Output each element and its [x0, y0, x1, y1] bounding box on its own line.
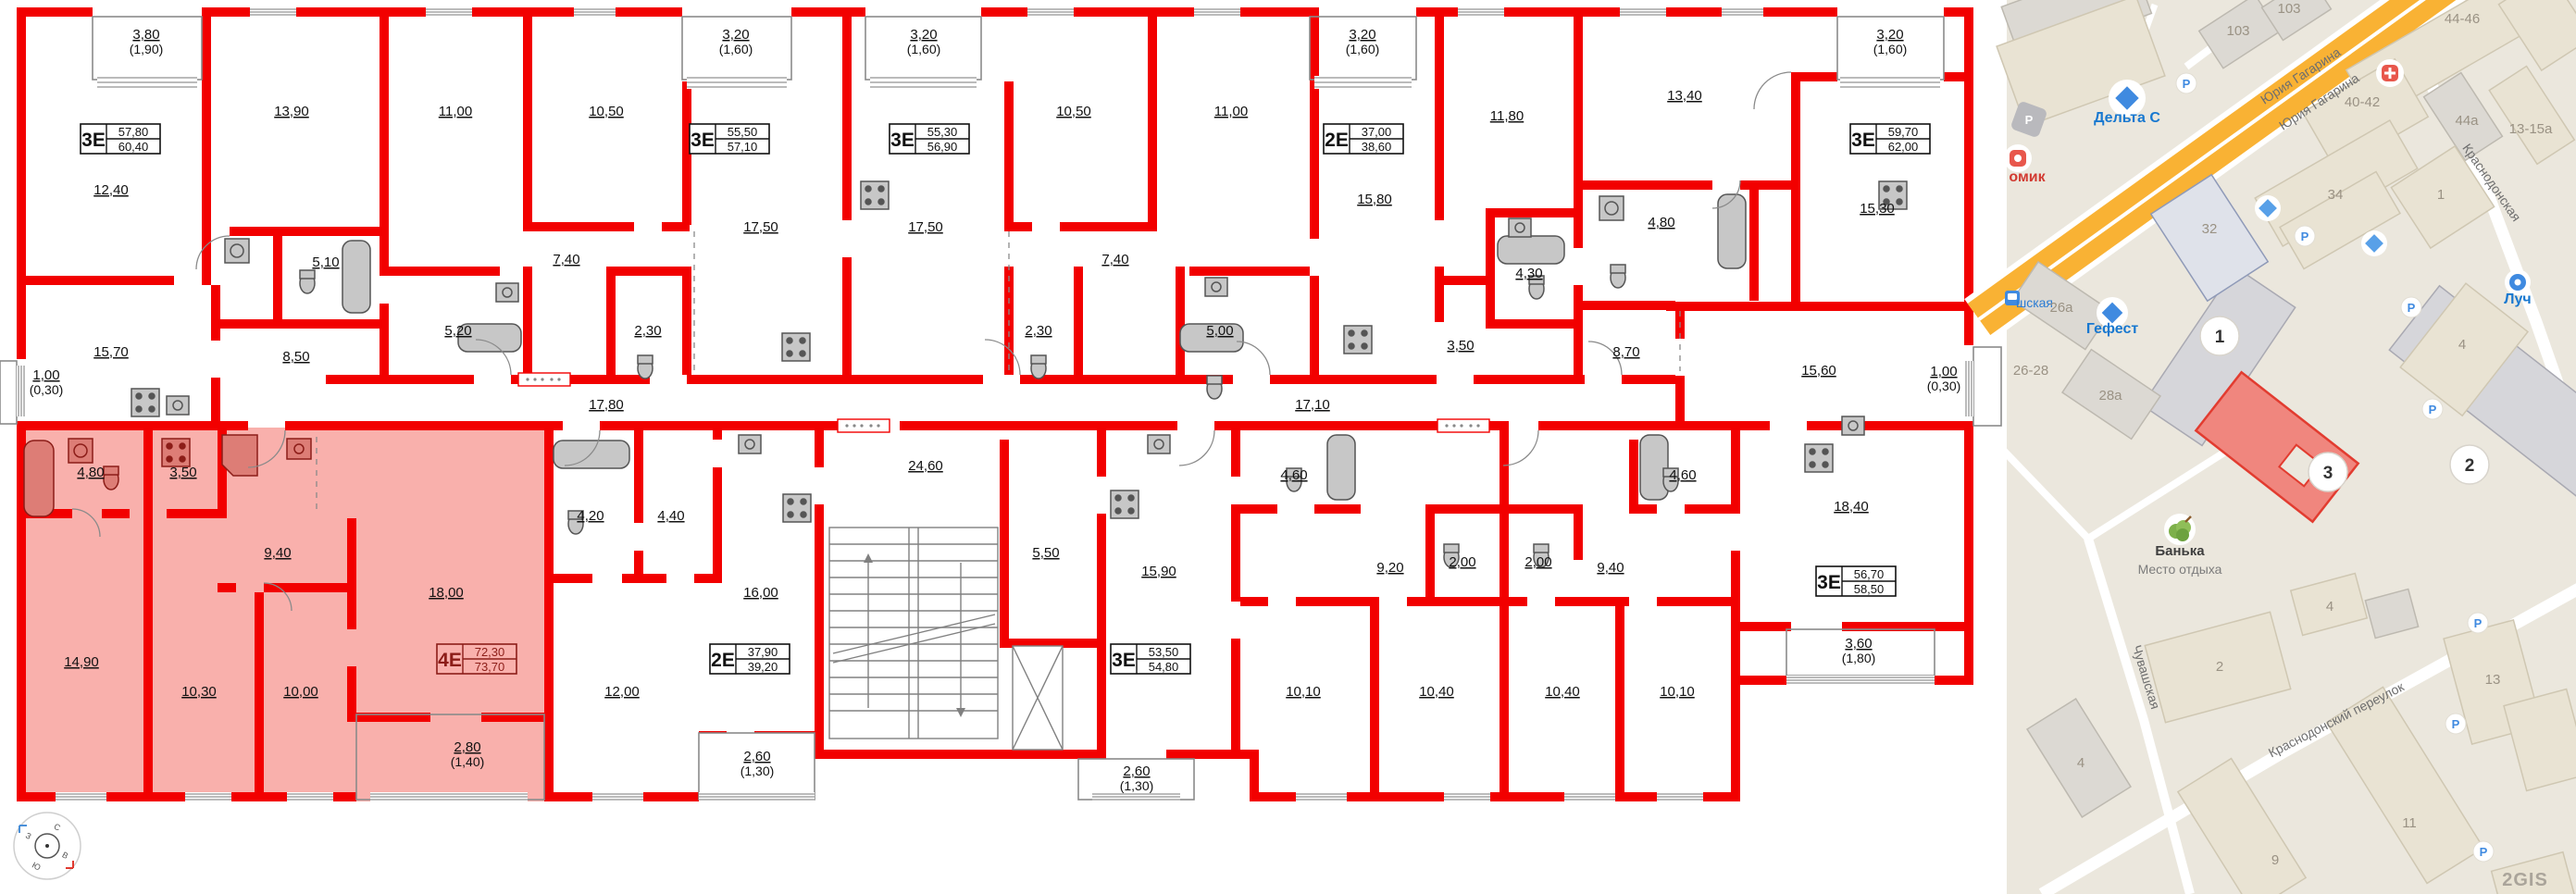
room-area-label: 17,50 — [908, 219, 943, 235]
room-area-label: 10,10 — [1286, 684, 1321, 700]
toilet-icon — [638, 355, 653, 379]
medical-poi-icon[interactable] — [2376, 59, 2404, 87]
building-number-label: 2 — [2216, 659, 2223, 675]
room-area-label: 15,80 — [1357, 192, 1392, 207]
room-area-label: 11,80 — [1490, 108, 1524, 124]
parking-icon[interactable]: P — [2468, 613, 2488, 633]
room-area-label: 11,00 — [1214, 104, 1248, 119]
room-area-label: 5,20 — [444, 323, 471, 339]
room-area-label: 13,40 — [1667, 88, 1702, 104]
apartment-badge[interactable]: 2Е37,9039,20 — [710, 644, 790, 674]
apartment-badge[interactable]: 3Е55,5057,10 — [690, 124, 769, 154]
sink-icon — [496, 283, 518, 302]
map-watermark: 2GIS — [2502, 870, 2548, 890]
stove-icon — [1805, 444, 1833, 472]
apartment-area-living: 72,30 — [475, 645, 505, 659]
room-area-label: 4,40 — [657, 508, 684, 524]
sink-icon — [1205, 278, 1227, 296]
balcony-coef-label: (1,60) — [907, 42, 941, 56]
stove-icon — [162, 439, 190, 466]
parking-icon[interactable]: P — [2295, 226, 2315, 246]
apartment-area-total: 58,50 — [1854, 582, 1885, 596]
building-number-label: 103 — [2226, 23, 2249, 39]
toilet-icon — [1611, 265, 1625, 288]
building-number-label: 103 — [2277, 1, 2300, 17]
parking-letter: P — [2301, 230, 2309, 243]
room-area-label: 7,40 — [553, 252, 579, 267]
apartment-area-total: 60,40 — [118, 140, 149, 154]
building-number-label: 34 — [2328, 187, 2344, 203]
balcony-area-label: 2,80 — [454, 739, 480, 755]
room-area-label: 3,50 — [169, 465, 196, 480]
washing-machine-icon — [225, 239, 249, 263]
room-area-label: 5,00 — [1206, 323, 1233, 339]
elevator-shaft — [1013, 646, 1063, 750]
building-number-label: 4 — [2326, 599, 2333, 615]
apartment-badge[interactable]: 3Е55,3056,90 — [890, 124, 969, 154]
apartment-area-living: 55,30 — [927, 125, 958, 139]
bathtub-icon — [1498, 236, 1564, 264]
sink-icon — [167, 396, 189, 415]
balcony-coef-label: (1,60) — [1873, 42, 1908, 56]
room-area-label: 24,60 — [908, 458, 943, 474]
map-marker-number: 1 — [2215, 328, 2225, 347]
svg-text:P: P — [2025, 113, 2034, 127]
building-number-label: 13-15а — [2509, 121, 2553, 137]
room-area-label: 11,00 — [439, 104, 472, 119]
building-number-label: 4 — [2458, 337, 2466, 353]
parking-letter: P — [2474, 616, 2483, 630]
balcony-area-label: 3,20 — [1349, 27, 1375, 43]
poi-label[interactable]: Луч — [2504, 292, 2531, 307]
room-area-label: 10,50 — [589, 104, 624, 119]
stove-icon — [131, 389, 159, 416]
balcony-coef-label: (1,40) — [451, 754, 485, 769]
stove-icon — [1344, 326, 1372, 354]
toilet-icon — [104, 466, 118, 490]
room-area-label: 15,30 — [1860, 201, 1895, 217]
room-area-label: 16,00 — [743, 585, 778, 601]
apartment-area-total: 56,90 — [927, 140, 958, 154]
poi-label[interactable]: Гефест — [2086, 321, 2139, 337]
room-area-label: 10,40 — [1419, 684, 1454, 700]
poi-label[interactable]: омик — [2009, 169, 2046, 185]
building-number-label: 26а — [2049, 300, 2073, 316]
balcony-area-label: 1,00 — [1930, 364, 1957, 379]
balcony-area-label: 1,00 — [32, 367, 59, 383]
balcony-area-label: 3,20 — [910, 27, 937, 43]
room-area-label: 2,00 — [1449, 554, 1475, 570]
sink-icon — [739, 435, 761, 453]
building-number-label: 40-42 — [2345, 94, 2380, 110]
bathtub-icon — [1640, 435, 1668, 500]
building-number-label: 9 — [2271, 852, 2279, 868]
room-area-label: 3,50 — [1447, 338, 1474, 354]
room-area-label: 9,40 — [264, 545, 291, 561]
balcony-area-label: 3,60 — [1845, 636, 1872, 652]
apartment-badge[interactable]: 3Е56,7058,50 — [1816, 566, 1896, 596]
map-marker-3[interactable]: 3 — [2308, 453, 2347, 491]
building-number-label: 26-28 — [2013, 363, 2048, 379]
room-area-label: 7,40 — [1101, 252, 1128, 267]
parking-letter: P — [2408, 301, 2416, 315]
toilet-icon — [1207, 376, 1222, 399]
room-area-label: 2,00 — [1524, 554, 1551, 570]
room-area-label: 12,40 — [93, 182, 129, 198]
apartment-area-living: 57,80 — [118, 125, 149, 139]
bathtub-icon — [24, 441, 54, 516]
room-area-label: 5,50 — [1032, 545, 1059, 561]
apartment-badge[interactable]: 3Е57,8060,40 — [81, 124, 160, 154]
parking-letter: P — [2480, 845, 2488, 859]
room-area-label: 13,90 — [274, 104, 309, 119]
room-area-label: 17,50 — [743, 219, 778, 235]
building-number-label: 44-46 — [2445, 11, 2480, 27]
apartment-type: 3Е — [691, 130, 715, 151]
parking-letter: P — [2183, 77, 2191, 91]
apartment-type: 3Е — [1112, 650, 1136, 671]
building-number-label: 28а — [2098, 388, 2122, 404]
balcony-coef-label: (1,30) — [740, 764, 775, 778]
apartment-area-living: 56,70 — [1854, 567, 1885, 581]
transit-stop-label[interactable]: шская — [2016, 295, 2053, 310]
poi-diamond-icon[interactable] — [2361, 230, 2387, 256]
toilet-icon — [300, 270, 315, 293]
staircase — [829, 528, 998, 739]
apartment-type: 3Е — [1851, 130, 1875, 151]
balcony-coef-label: (1,60) — [719, 42, 753, 56]
parking-icon[interactable]: P — [2422, 399, 2443, 419]
washing-machine-icon — [1599, 196, 1624, 220]
parking-icon[interactable]: P — [2401, 297, 2421, 317]
toilet-icon — [1031, 355, 1046, 379]
sink-icon — [1842, 416, 1864, 435]
room-area-label: 10,50 — [1056, 104, 1091, 119]
building-number-label: 11 — [2402, 815, 2417, 831]
parking-letter: P — [2452, 717, 2460, 731]
room-area-label: 18,40 — [1834, 499, 1869, 515]
floor-plan: 13,9011,0012,405,108,5015,7010,507,405,2… — [0, 0, 2007, 894]
room-area-label: 4,60 — [1280, 467, 1307, 483]
bathtub-icon — [342, 241, 370, 313]
room-area-label: 2,30 — [1025, 323, 1052, 339]
apartment-badge[interactable]: 2Е37,0038,60 — [1324, 124, 1403, 154]
balcony-coef-label: (1,80) — [1842, 651, 1876, 665]
room-area-label: 10,00 — [283, 684, 318, 700]
apartment-area-living: 53,50 — [1149, 645, 1179, 659]
balcony-coef-label: (1,30) — [1120, 778, 1154, 793]
apartment-area-total: 54,80 — [1149, 660, 1179, 674]
building-number-label: 32 — [2202, 221, 2218, 237]
balcony-coef-label: (1,90) — [130, 42, 164, 56]
balcony-area-label: 2,60 — [1123, 764, 1150, 779]
poi-label[interactable]: Дельта С — [2094, 110, 2160, 126]
apartment-type: 2Е — [1325, 130, 1349, 151]
apartment-area-total: 57,10 — [728, 140, 758, 154]
room-area-label: 9,40 — [1597, 560, 1624, 576]
apartment-type: 2Е — [711, 650, 735, 671]
building-number-label: 1 — [2437, 187, 2445, 203]
sink-icon — [1509, 218, 1531, 237]
room-area-label: 10,10 — [1660, 684, 1695, 700]
bathtub-icon — [554, 441, 629, 468]
bathtub-icon — [1718, 194, 1746, 268]
apartment-area-total: 39,20 — [748, 660, 778, 674]
room-area-label: 9,20 — [1376, 560, 1403, 576]
map-marker-number: 2 — [2465, 456, 2475, 476]
balcony-area-label: 3,20 — [1876, 27, 1903, 43]
room-area-label: 4,80 — [1648, 215, 1674, 230]
banka-tree-icon[interactable] — [2164, 514, 2196, 545]
balcony-area-label: 2,60 — [743, 749, 770, 764]
stove-icon — [861, 181, 889, 209]
washing-machine-icon — [68, 439, 93, 463]
apartment-area-living: 37,00 — [1362, 125, 1392, 139]
balcony-area-label: 3,80 — [132, 27, 159, 43]
room-area-label: 4,60 — [1669, 467, 1696, 483]
parking-icon[interactable]: P — [2473, 841, 2494, 862]
apartment-area-living: 55,50 — [728, 125, 758, 139]
room-area-label: 4,30 — [1515, 266, 1542, 281]
balcony-area-label: 3,20 — [722, 27, 749, 43]
poi-label[interactable]: Место отдыха — [2138, 562, 2222, 577]
room-area-label: 14,90 — [64, 654, 99, 670]
parking-icon[interactable]: P — [2176, 73, 2196, 93]
stove-icon — [782, 333, 810, 361]
map-marker-2[interactable]: 2 — [2450, 445, 2489, 484]
room-area-label: 2,30 — [634, 323, 661, 339]
apartment-area-total: 62,00 — [1888, 140, 1919, 154]
map-marker-1[interactable]: 1 — [2200, 317, 2239, 355]
building-number-label: 44а — [2455, 113, 2479, 129]
poi-icon-red-house[interactable] — [2004, 144, 2032, 172]
room-area-label: 17,80 — [589, 397, 624, 413]
parking-icon[interactable]: P — [2445, 714, 2466, 734]
apartment-type: 3Е — [1817, 572, 1841, 593]
stove-icon — [1111, 490, 1139, 518]
apartment-type: 3Е — [890, 130, 915, 151]
balcony-coef-label: (1,60) — [1346, 42, 1380, 56]
apartment-type: 4Е — [438, 650, 462, 671]
balcony-coef-label: (0,30) — [30, 382, 64, 397]
room-area-label: 10,40 — [1545, 684, 1580, 700]
room-area-label: 8,70 — [1612, 344, 1639, 360]
map-marker-number: 3 — [2323, 464, 2333, 483]
apartment-area-living: 37,90 — [748, 645, 778, 659]
room-area-label: 4,20 — [577, 508, 604, 524]
bathtub-icon — [1327, 435, 1355, 500]
room-area-label: 4,80 — [77, 465, 104, 480]
room-area-label: 8,50 — [282, 349, 309, 365]
room-area-label: 15,60 — [1801, 363, 1836, 379]
apartment-badge[interactable]: 3Е53,5054,80 — [1111, 644, 1190, 674]
room-area-label: 15,70 — [93, 344, 129, 360]
sink-icon — [287, 439, 311, 459]
room-area-label: 10,30 — [181, 684, 217, 700]
map-panel[interactable]: P PPPPPPP — [1979, 0, 2576, 894]
room-area-label: 18,00 — [429, 585, 464, 601]
room-area-label: 12,00 — [604, 684, 640, 700]
apartment-type: 3Е — [81, 130, 106, 151]
apartment-area-living: 59,70 — [1888, 125, 1919, 139]
apartment-area-total: 73,70 — [475, 660, 505, 674]
apartment-badge[interactable]: 3Е59,7062,00 — [1850, 124, 1930, 154]
balcony-coef-label: (0,30) — [1927, 379, 1961, 393]
shower-icon — [222, 435, 257, 476]
building-number-label: 13 — [2485, 672, 2501, 688]
room-area-label: 15,90 — [1141, 564, 1176, 579]
floorplan-viewer: 13,9011,0012,405,108,5015,7010,507,405,2… — [0, 0, 2576, 894]
poi-diamond-icon[interactable] — [2255, 195, 2281, 221]
room-area-label: 17,10 — [1295, 397, 1330, 413]
poi-label[interactable]: Банька — [2155, 543, 2205, 559]
stove-icon — [783, 494, 811, 522]
room-area-label: 5,10 — [312, 255, 339, 270]
parking-letter: P — [2429, 403, 2437, 416]
apartment-area-total: 38,60 — [1362, 140, 1392, 154]
sink-icon — [1148, 435, 1170, 453]
building-number-label: 4 — [2077, 755, 2084, 771]
